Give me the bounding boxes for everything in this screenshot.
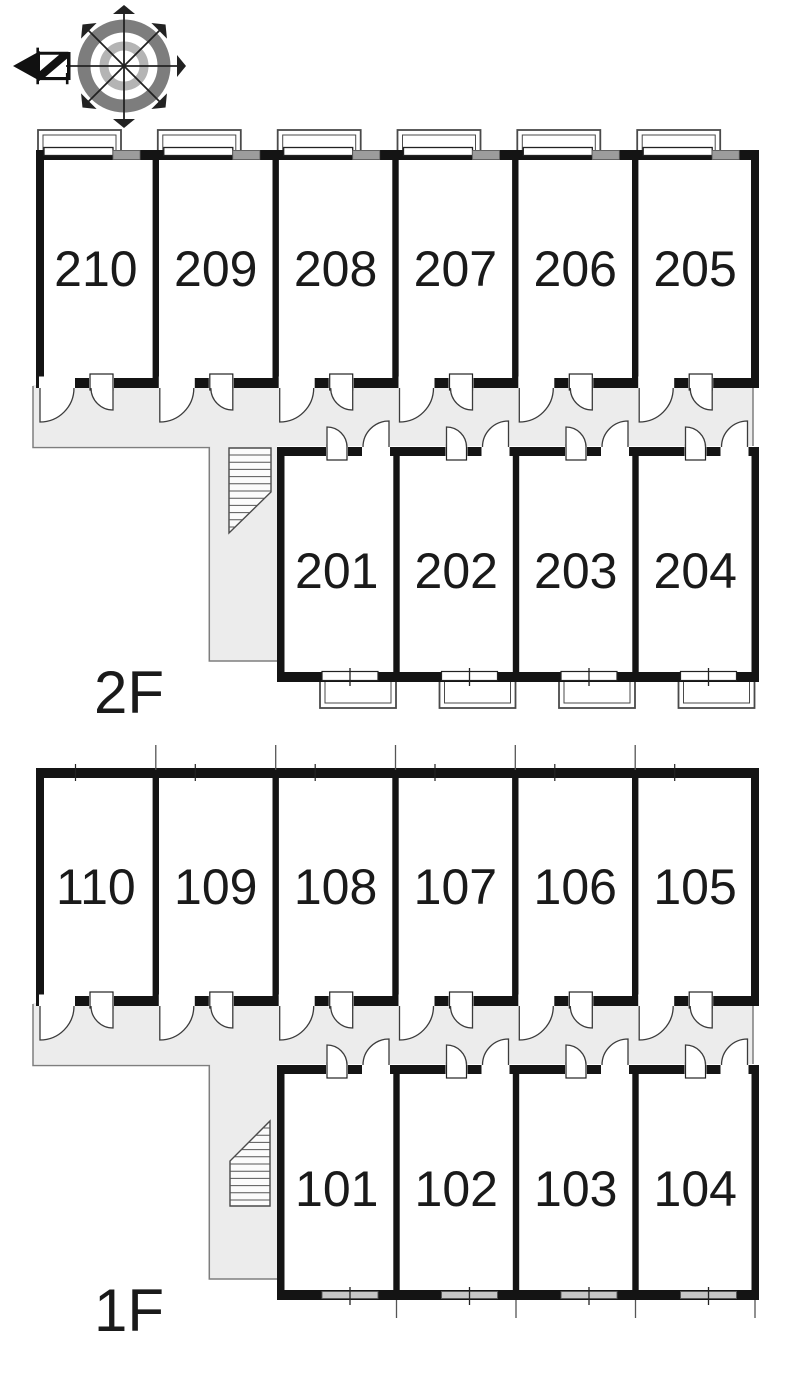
compass-rose [66,5,186,128]
floor-label-2F: 2F [94,659,164,726]
floor-plan-drawing: N2102092082072062052012022032042F1101091… [0,0,800,1373]
room-label-208: 208 [294,241,377,297]
room-label-107: 107 [414,859,497,915]
corridor-2F [33,385,753,661]
room-label-210: 210 [54,241,137,297]
room-label-110: 110 [56,859,136,915]
north-arrow: N [13,46,80,86]
floor-2F: 2102092082072062052012022032042F [33,130,759,726]
floor-1F: 1101091081071061051011021031041F [33,745,759,1373]
room-label-206: 206 [534,241,617,297]
room-label-207: 207 [414,241,497,297]
room-label-108: 108 [294,859,377,915]
corridor-1F [33,1003,753,1279]
north-label: N [29,46,80,86]
compass-arrowhead [113,5,135,14]
room-label-109: 109 [174,859,257,915]
room-label-202: 202 [415,543,498,599]
floor-label-1F: 1F [94,1277,164,1344]
room-label-105: 105 [653,859,736,915]
room-label-102: 102 [415,1161,498,1217]
room-label-103: 103 [534,1161,617,1217]
room-label-201: 201 [295,543,378,599]
compass-arrowhead [113,119,135,128]
room-label-209: 209 [174,241,257,297]
compass-arrowhead [177,55,186,77]
room-label-203: 203 [534,543,617,599]
room-label-205: 205 [653,241,736,297]
room-label-106: 106 [534,859,617,915]
room-label-204: 204 [654,543,737,599]
room-label-101: 101 [295,1161,378,1217]
room-label-104: 104 [654,1161,737,1217]
floorplan-canvas: N2102092082072062052012022032042F1101091… [0,0,800,1373]
